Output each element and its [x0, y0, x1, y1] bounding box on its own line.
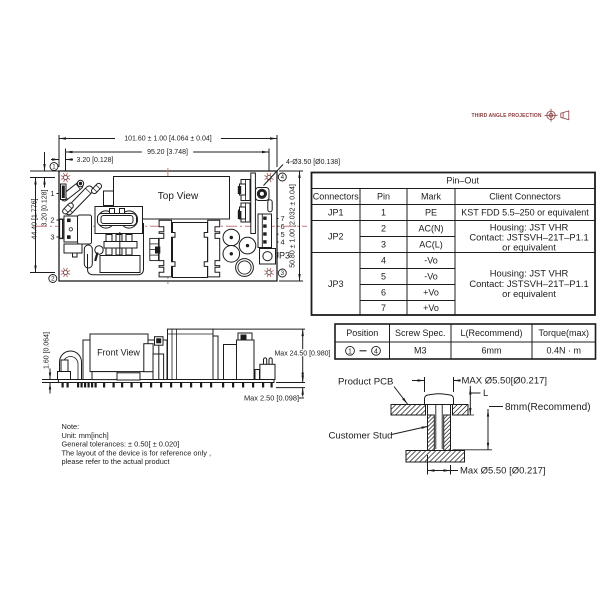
- svg-text:Product PCB: Product PCB: [338, 377, 393, 388]
- svg-text:3.20 [0.128]: 3.20 [0.128]: [77, 157, 114, 164]
- svg-text:3: 3: [50, 233, 54, 242]
- svg-text:Max 2.50 [0.098]: Max 2.50 [0.098]: [244, 394, 299, 403]
- svg-text:Connectors: Connectors: [313, 192, 360, 202]
- svg-text:The layout of the device is fo: The layout of the device is for referenc…: [62, 448, 212, 457]
- svg-text:4: 4: [281, 174, 285, 181]
- svg-text:AC(L): AC(L): [419, 240, 443, 250]
- svg-text:JP3: JP3: [328, 279, 344, 289]
- svg-text:Customer Stud: Customer Stud: [329, 431, 393, 442]
- svg-text:JP2: JP2: [328, 232, 344, 242]
- svg-text:+Vo: +Vo: [423, 303, 439, 313]
- svg-text:4: 4: [374, 348, 378, 355]
- svg-text:Max Ø5.50 [Ø0.217]: Max Ø5.50 [Ø0.217]: [460, 465, 546, 476]
- svg-text:Unit: mm[inch]: Unit: mm[inch]: [62, 431, 109, 440]
- svg-text:1: 1: [348, 348, 352, 355]
- svg-text:3.20 [0.128]: 3.20 [0.128]: [41, 189, 48, 226]
- svg-text:+Vo: +Vo: [423, 288, 439, 298]
- svg-text:General tolerances: ± 0.50[ ±: General tolerances: ± 0.50[ ± 0.020]: [62, 440, 180, 449]
- svg-text:MAX Ø5.50[Ø0.217]: MAX Ø5.50[Ø0.217]: [462, 375, 548, 386]
- svg-text:Screw Spec.: Screw Spec.: [395, 328, 446, 338]
- svg-text:3: 3: [281, 270, 285, 277]
- svg-text:L: L: [483, 388, 488, 399]
- svg-text:7: 7: [381, 303, 386, 313]
- svg-text:6mm: 6mm: [482, 346, 502, 356]
- svg-text:Mark: Mark: [421, 192, 441, 202]
- svg-text:Client Connectors: Client Connectors: [489, 192, 561, 202]
- svg-text:2: 2: [51, 276, 55, 283]
- svg-text:Pin–Out: Pin–Out: [446, 176, 479, 186]
- svg-text:KST FDD 5.5–250 or equivalent: KST FDD 5.5–250 or equivalent: [461, 208, 589, 218]
- svg-text:95.20 [3.748]: 95.20 [3.748]: [147, 149, 188, 156]
- svg-text:Contact: JSTSVH–21T–P1.1: Contact: JSTSVH–21T–P1.1: [469, 278, 588, 289]
- svg-text:Torque(max): Torque(max): [538, 328, 589, 338]
- svg-text:or equivalent: or equivalent: [502, 242, 556, 253]
- svg-text:Note:: Note:: [62, 422, 80, 431]
- svg-text:Position: Position: [346, 328, 378, 338]
- svg-text:1.60 [0.064]: 1.60 [0.064]: [44, 332, 51, 369]
- svg-text:101.60 ± 1.00 [4.064 ± 0.04]: 101.60 ± 1.00 [4.064 ± 0.04]: [124, 136, 212, 143]
- svg-text:3: 3: [381, 240, 386, 250]
- svg-text:-Vo: -Vo: [424, 256, 438, 266]
- svg-text:AC(N): AC(N): [419, 224, 444, 234]
- svg-text:4: 4: [381, 256, 386, 266]
- svg-text:Top View: Top View: [158, 191, 199, 202]
- svg-text:5: 5: [381, 272, 386, 282]
- svg-text:8mm(Recommend): 8mm(Recommend): [505, 402, 591, 413]
- svg-text:or equivalent: or equivalent: [502, 288, 556, 299]
- svg-text:1: 1: [381, 208, 386, 218]
- svg-text:M3: M3: [414, 346, 427, 356]
- svg-text:Front View: Front View: [97, 347, 140, 357]
- svg-text:L(Recommend): L(Recommend): [460, 328, 522, 338]
- svg-text:44.40 [1.776]: 44.40 [1.776]: [31, 199, 38, 240]
- svg-text:2: 2: [50, 216, 54, 225]
- svg-text:please refer to the actual pro: please refer to the actual product: [62, 457, 170, 466]
- svg-text:6: 6: [381, 288, 386, 298]
- svg-text:0.4N · m: 0.4N · m: [546, 346, 581, 356]
- svg-text:4-Ø3.50 [Ø0.138]: 4-Ø3.50 [Ø0.138]: [286, 159, 340, 166]
- svg-text:THIRD ANGLE PROJECTION: THIRD ANGLE PROJECTION: [472, 113, 542, 119]
- svg-text:1: 1: [52, 164, 56, 171]
- svg-text:Max 24.50 [0.980]: Max 24.50 [0.980]: [274, 351, 330, 358]
- svg-text:Housing: JST VHR: Housing: JST VHR: [490, 267, 569, 278]
- svg-text:2: 2: [381, 224, 386, 234]
- svg-text:JP1: JP1: [328, 208, 344, 218]
- svg-text:PE: PE: [425, 208, 437, 218]
- svg-text:Pin: Pin: [377, 192, 390, 202]
- svg-text:-Vo: -Vo: [424, 272, 438, 282]
- svg-text:4: 4: [281, 238, 285, 247]
- svg-text:1: 1: [50, 189, 54, 198]
